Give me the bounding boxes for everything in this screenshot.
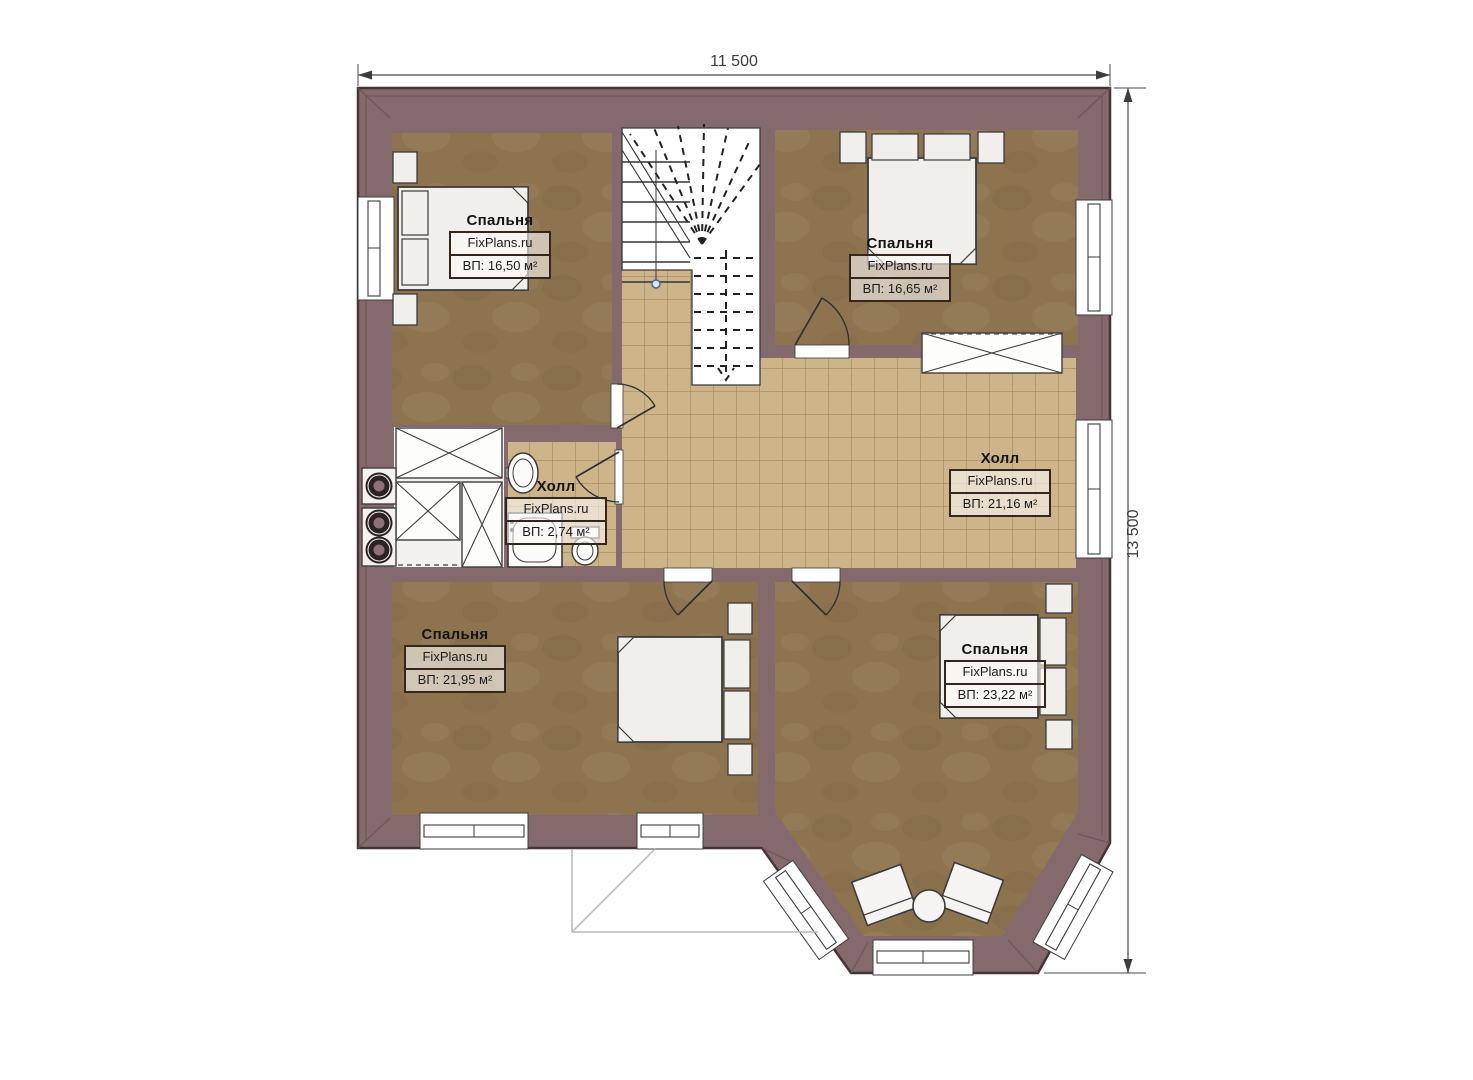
window-left-wall [358, 197, 394, 300]
floor-plan: 11 500 13 500 Спальня FixPlans.ru ВП: 16… [0, 0, 1473, 1080]
dimension-right-label: 13 500 [1125, 509, 1142, 558]
window-right-wall-top [1076, 200, 1112, 315]
side-table [913, 890, 945, 922]
dimension-top: 11 500 [358, 53, 1110, 86]
floor-plan-canvas: 11 500 13 500 [0, 0, 1473, 1080]
window-bay-bottom [873, 940, 973, 975]
window-right-wall-hall [1076, 420, 1112, 558]
toilet [571, 527, 599, 565]
dimension-top-label: 11 500 [710, 53, 758, 70]
window-bottom-mid [637, 813, 703, 849]
window-bottom-left [420, 813, 528, 849]
bathtub [508, 513, 562, 567]
chimney-flues [362, 468, 396, 566]
wardrobe-top-right [922, 333, 1062, 373]
